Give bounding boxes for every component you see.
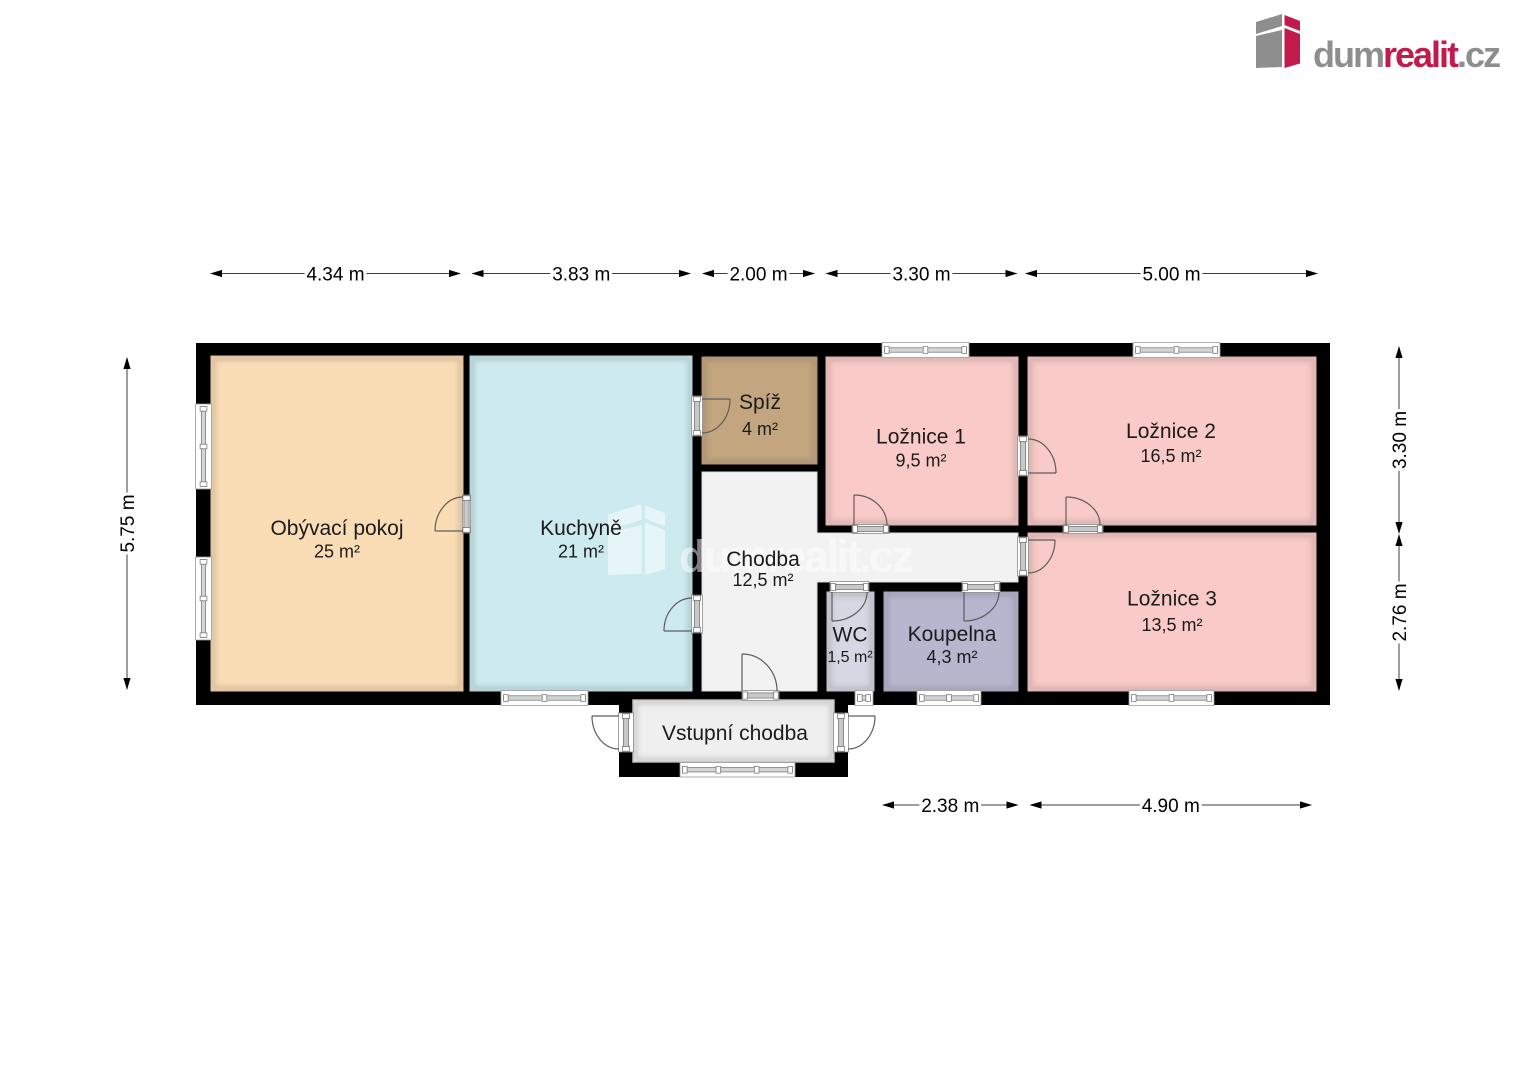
svg-text:Spíž: Spíž <box>739 391 781 414</box>
svg-text:13,5 m²: 13,5 m² <box>1141 615 1202 635</box>
svg-text:3.30 m: 3.30 m <box>1390 411 1411 469</box>
svg-text:3.30 m: 3.30 m <box>892 265 950 286</box>
svg-text:9,5 m²: 9,5 m² <box>895 451 946 471</box>
svg-text:2.76 m: 2.76 m <box>1390 583 1411 641</box>
svg-text:21 m²: 21 m² <box>558 542 604 562</box>
svg-text:Obývací pokoj: Obývací pokoj <box>270 517 403 540</box>
svg-text:25 m²: 25 m² <box>314 542 360 562</box>
svg-text:Koupelna: Koupelna <box>908 623 997 646</box>
svg-text:2.00 m: 2.00 m <box>729 265 787 286</box>
svg-text:Ložnice 1: Ložnice 1 <box>876 426 966 449</box>
svg-text:Ložnice 3: Ložnice 3 <box>1127 588 1217 611</box>
svg-text:4.90 m: 4.90 m <box>1142 796 1200 817</box>
svg-text:4,3 m²: 4,3 m² <box>926 647 977 667</box>
svg-text:5.00 m: 5.00 m <box>1142 265 1200 286</box>
svg-text:4.34 m: 4.34 m <box>306 265 364 286</box>
svg-text:Kuchyně: Kuchyně <box>540 517 622 540</box>
svg-text:WC: WC <box>833 624 868 647</box>
svg-text:12,5 m²: 12,5 m² <box>732 570 793 590</box>
svg-text:4 m²: 4 m² <box>742 419 778 439</box>
svg-text:Vstupní chodba: Vstupní chodba <box>662 722 808 745</box>
svg-text:16,5 m²: 16,5 m² <box>1140 446 1201 466</box>
svg-text:3.83 m: 3.83 m <box>552 265 610 286</box>
svg-text:5.75 m: 5.75 m <box>118 494 139 552</box>
svg-text:Chodba: Chodba <box>726 548 800 571</box>
svg-text:dumrealit.cz: dumrealit.cz <box>1313 34 1500 75</box>
svg-text:2.38 m: 2.38 m <box>921 796 979 817</box>
svg-text:1,5 m²: 1,5 m² <box>827 649 873 666</box>
svg-text:Ložnice 2: Ložnice 2 <box>1126 420 1216 443</box>
